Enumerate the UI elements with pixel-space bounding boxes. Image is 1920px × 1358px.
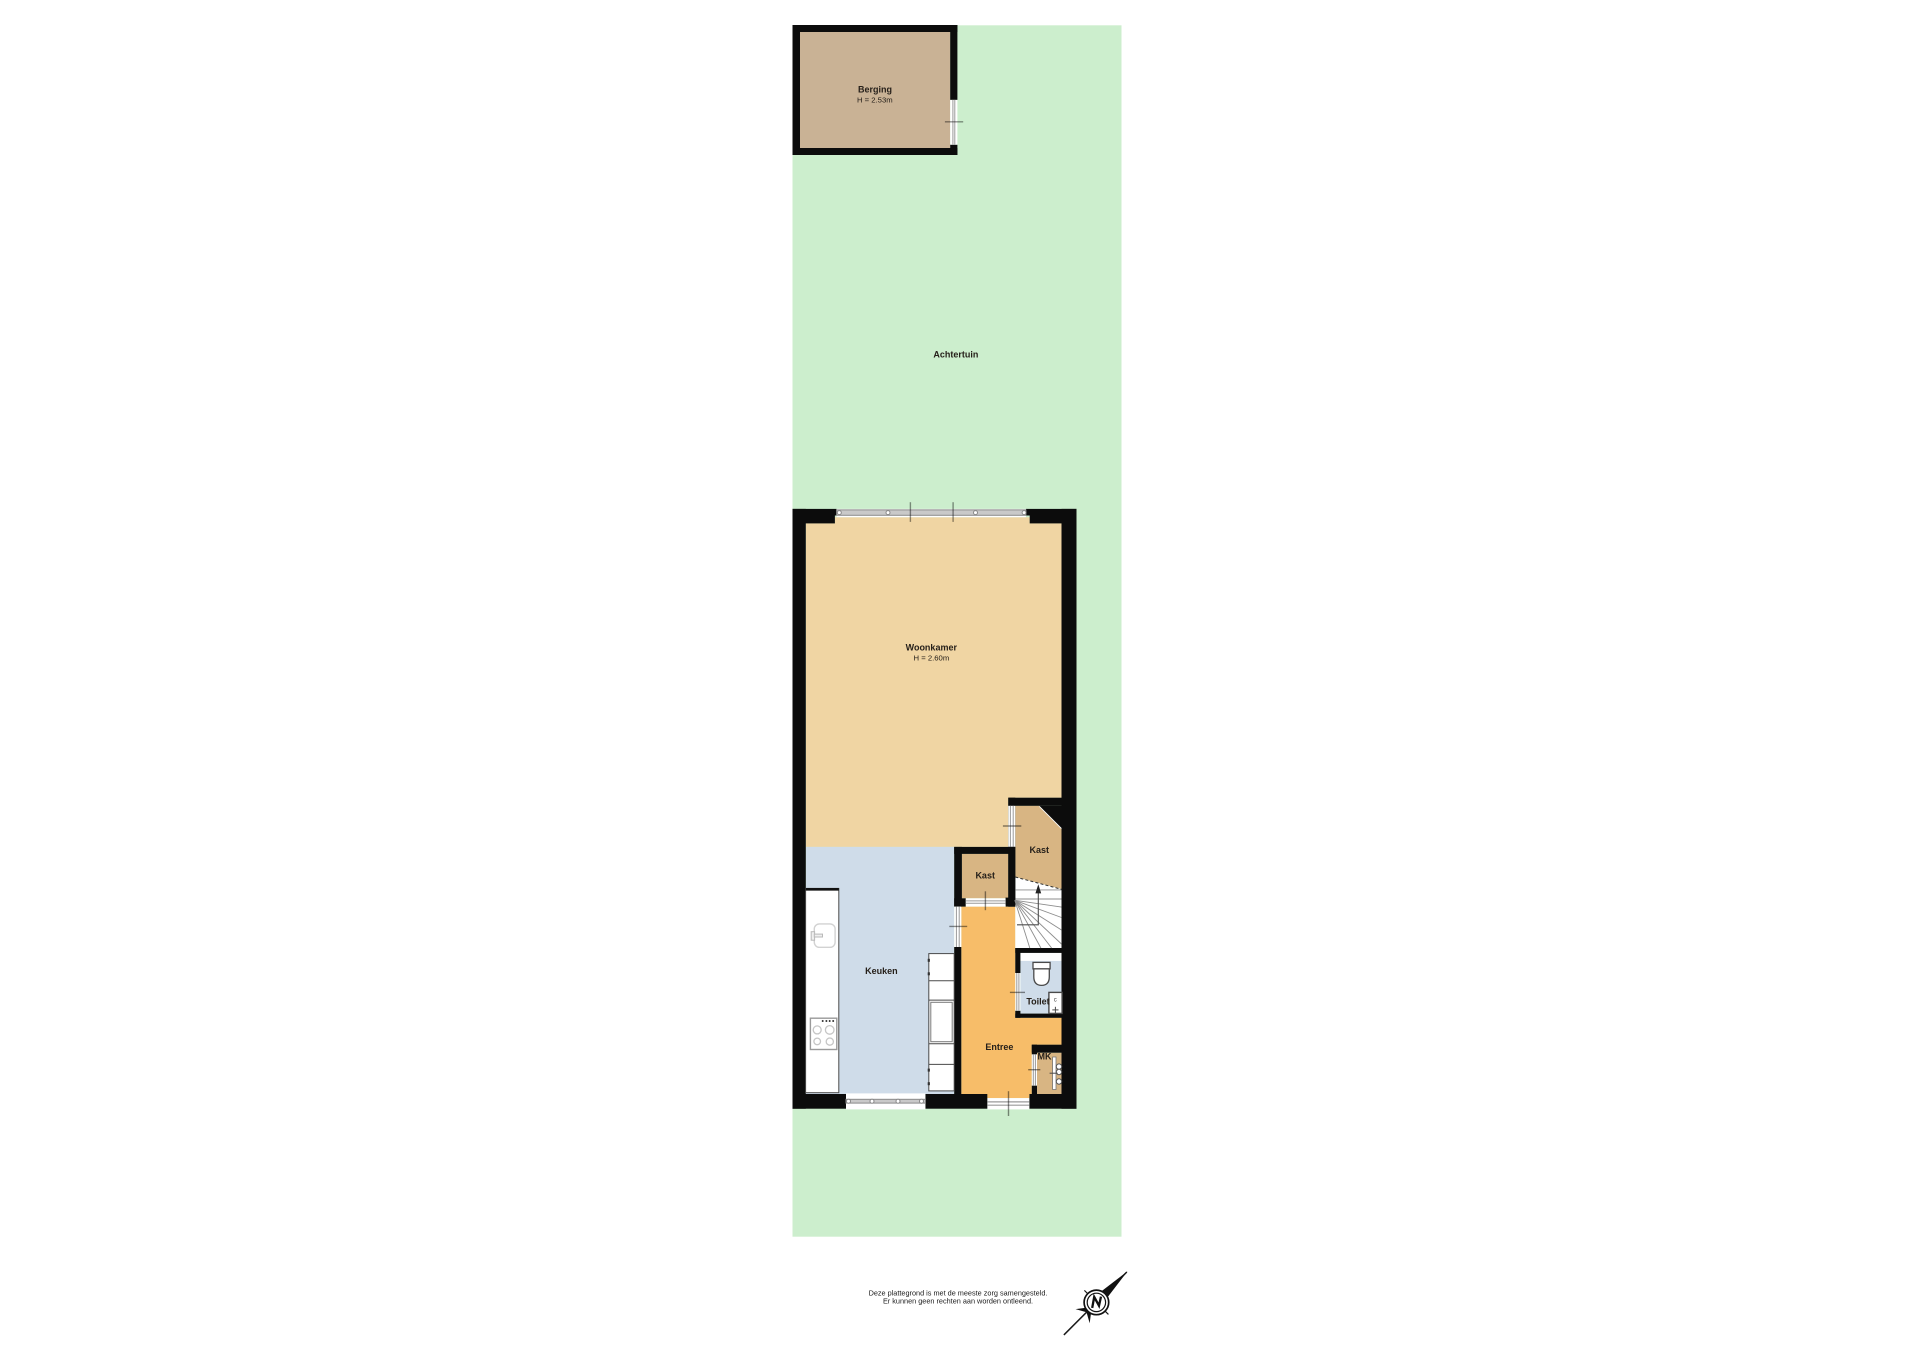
svg-text:Toilet: Toilet bbox=[1026, 996, 1049, 1006]
svg-text:Kast: Kast bbox=[1030, 845, 1050, 855]
svg-text:Woonkamer: Woonkamer bbox=[906, 642, 958, 652]
svg-text:Berging: Berging bbox=[858, 85, 892, 95]
svg-text:Er kunnen geen rechten aan wor: Er kunnen geen rechten aan worden ontlee… bbox=[883, 1296, 1033, 1305]
svg-text:MK: MK bbox=[1038, 1052, 1052, 1062]
svg-text:Entree: Entree bbox=[985, 1042, 1013, 1052]
svg-text:H = 2.53m: H = 2.53m bbox=[857, 96, 893, 105]
svg-text:H = 2.60m: H = 2.60m bbox=[914, 654, 950, 663]
svg-text:Achtertuin: Achtertuin bbox=[933, 350, 978, 360]
svg-text:Kast: Kast bbox=[975, 870, 995, 880]
svg-text:Keuken: Keuken bbox=[865, 966, 898, 976]
svg-text:c: c bbox=[1054, 998, 1057, 1004]
